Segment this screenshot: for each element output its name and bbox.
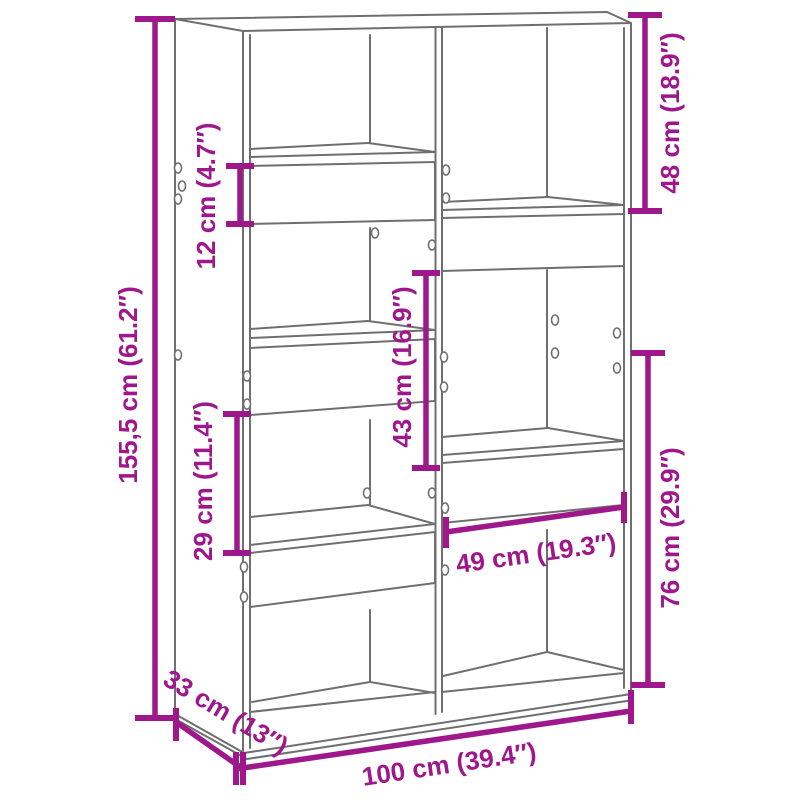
screw-hole — [442, 503, 449, 513]
screw-hole — [429, 240, 436, 250]
screw-hole — [441, 382, 448, 392]
screw-hole — [552, 315, 559, 325]
screw-hole — [443, 193, 450, 203]
shelf1-depth-edge — [368, 143, 435, 152]
dimension-label-middle-43: 43 cm (16.9″) — [387, 286, 417, 447]
screw-hole — [241, 562, 248, 572]
dimension-label-left-lower-29: 29 cm (11.4″) — [188, 401, 218, 561]
screw-hole — [179, 181, 186, 191]
dimension-right-lower-76: 76 cm (29.9″) — [631, 353, 685, 685]
shelf3-back-lip — [250, 321, 368, 329]
screw-hole — [552, 348, 559, 358]
dimension-label-inner-width-49: 49 cm (19.3″) — [454, 527, 618, 579]
screw-hole — [175, 194, 182, 204]
shelf5-back-lip — [250, 505, 368, 517]
shelf5-depth-edge — [368, 505, 435, 524]
screw-hole — [175, 163, 182, 173]
backer-band-5 — [250, 532, 435, 607]
dimension-label-top-right-48: 48 cm (18.9″) — [655, 32, 685, 193]
dimension-total-width-100: 100 cm (39.4″) — [236, 690, 631, 792]
screw-hole — [442, 565, 449, 575]
dimension-label-backer-12: 12 cm (4.7″) — [191, 123, 221, 270]
dimension-total-height: 155,5 cm (61.2″) — [113, 19, 175, 718]
dimension-depth-33: 33 cm (13″) — [158, 663, 293, 785]
floor-right-back-left — [443, 652, 547, 676]
screw-hole — [364, 488, 371, 498]
floor-right-front-edge — [442, 673, 624, 692]
top-face-edges — [175, 12, 631, 31]
dimension-left-lower-29: 29 cm (11.4″) — [188, 401, 251, 561]
screw-hole — [244, 399, 251, 409]
shelf4-back-lip — [442, 428, 548, 437]
dimension-label-right-lower-76: 76 cm (29.9″) — [655, 447, 685, 608]
floor-left-back-left — [252, 682, 370, 702]
screw-hole — [441, 352, 448, 362]
screw-hole — [244, 371, 251, 381]
floor-left-back-right — [370, 682, 435, 693]
shelf4-depth-edge — [548, 428, 624, 441]
backer-band-2 — [442, 214, 624, 271]
screw-hole — [175, 350, 182, 360]
dimension-label-total-height: 155,5 cm (61.2″) — [113, 286, 143, 483]
screw-hole — [443, 165, 450, 175]
screw-hole — [372, 228, 379, 238]
floor-right-back-right — [547, 652, 624, 670]
screw-hole — [614, 363, 621, 373]
screw-hole — [614, 328, 621, 338]
shelf2-front-lip — [442, 205, 624, 210]
dimension-backer-12: 12 cm (4.7″) — [191, 123, 254, 270]
dimension-diagram: 155,5 cm (61.2″) 12 cm (4.7″) 48 cm (18.… — [0, 0, 800, 800]
floor-left-front-edge — [250, 692, 435, 712]
bookcase-diagram-canvas: 155,5 cm (61.2″) 12 cm (4.7″) 48 cm (18.… — [0, 0, 800, 800]
shelf2-depth-edge — [548, 197, 624, 205]
shelf1-front-lip — [250, 152, 435, 157]
dimension-top-right-48: 48 cm (18.9″) — [628, 15, 685, 211]
screw-hole — [241, 592, 248, 602]
screw-hole — [429, 488, 436, 498]
backer-band-1 — [250, 162, 435, 224]
front-bottom-edge — [244, 694, 631, 753]
shelf2-back-lip — [442, 197, 548, 202]
shelf1-back-lip — [250, 143, 368, 149]
